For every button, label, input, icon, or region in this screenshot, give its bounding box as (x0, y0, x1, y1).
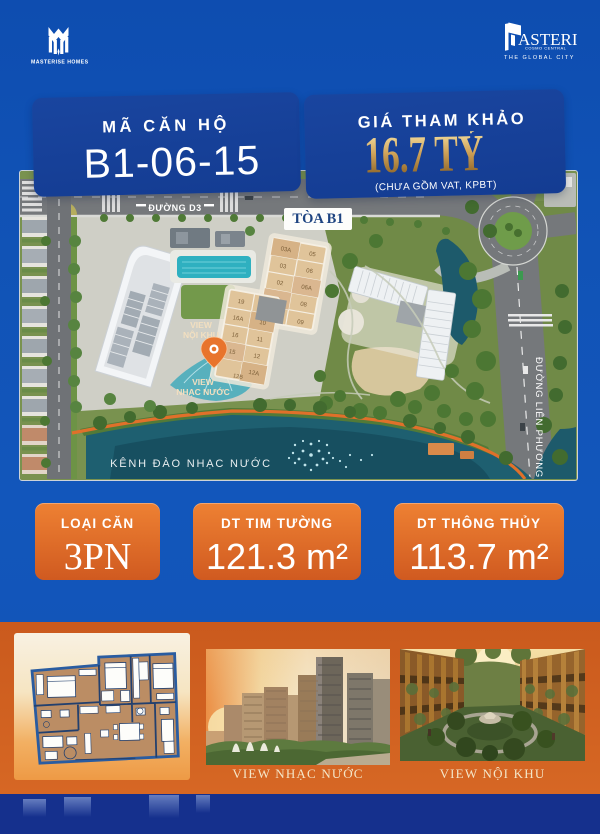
svg-text:THE GLOBAL CITY: THE GLOBAL CITY (504, 55, 575, 61)
svg-text:KÊNH ĐÀO NHẠC NƯỚC: KÊNH ĐÀO NHẠC NƯỚC (110, 457, 272, 470)
svg-text:MASTERISE HOMES: MASTERISE HOMES (31, 60, 89, 66)
svg-text:NHẠC NƯỚC: NHẠC NƯỚC (176, 386, 230, 397)
svg-text:ĐƯỜNG D3: ĐƯỜNG D3 (148, 202, 201, 213)
svg-text:VIEW: VIEW (192, 377, 215, 387)
svg-text:COSMO CENTRAL: COSMO CENTRAL (525, 46, 567, 51)
svg-text:ĐƯỜNG LIÊN PHƯƠNG: ĐƯỜNG LIÊN PHƯƠNG (533, 357, 544, 478)
svg-text:VIEW: VIEW (190, 320, 213, 330)
